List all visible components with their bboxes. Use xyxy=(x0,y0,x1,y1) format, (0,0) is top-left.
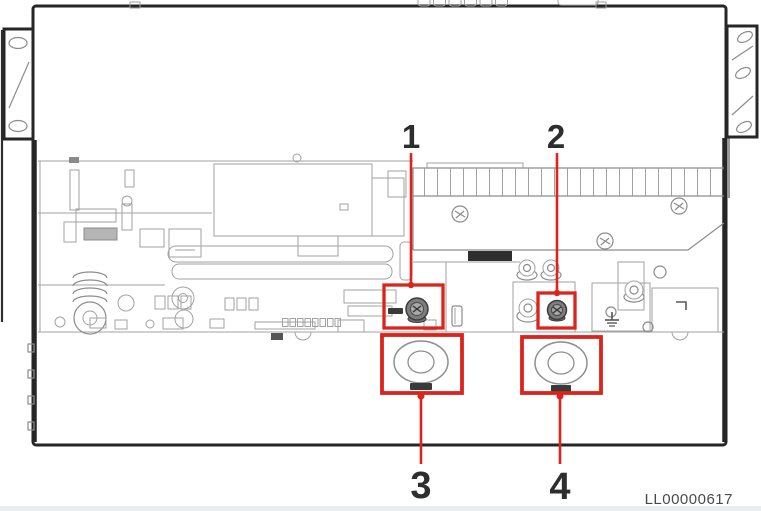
callout-1-label: 1 xyxy=(402,118,420,155)
ear-slot xyxy=(9,38,27,49)
ear-slot xyxy=(736,29,754,44)
screw-icon xyxy=(597,233,613,249)
left-mounting-ear xyxy=(4,29,33,139)
bolt-icon xyxy=(517,260,537,280)
ear-slot xyxy=(9,121,27,132)
screenshot-edge-strip xyxy=(0,506,761,511)
terminal-screw-2 xyxy=(548,301,567,322)
bolt-icon xyxy=(517,299,539,322)
gland-label-smudge xyxy=(551,385,571,392)
screw-icon xyxy=(452,206,468,222)
ear-slot xyxy=(734,65,752,80)
gland-label-smudge xyxy=(410,383,432,390)
figure-canvas: 1 2 3 4 LL00000617 xyxy=(0,0,761,511)
bolt-icon xyxy=(624,281,644,302)
gland-hole-4 xyxy=(535,342,587,392)
screw-icon xyxy=(671,198,687,214)
ear-slot xyxy=(735,119,753,134)
figure-code: LL00000617 xyxy=(645,491,733,508)
callout-2-label: 2 xyxy=(547,118,565,155)
right-mounting-ear xyxy=(727,26,757,137)
device-rear-diagram: 1 2 3 4 LL00000617 xyxy=(0,0,761,511)
gland-hole-3 xyxy=(394,341,448,390)
callout-2: 2 xyxy=(538,118,575,328)
right-cover-panel xyxy=(413,163,724,250)
callout-3-label: 3 xyxy=(410,465,431,507)
terminal-screw-1 xyxy=(388,298,428,323)
terminal-label-smudge xyxy=(388,308,403,314)
callout-4-label: 4 xyxy=(549,466,570,508)
label-plate-dark xyxy=(468,251,512,261)
